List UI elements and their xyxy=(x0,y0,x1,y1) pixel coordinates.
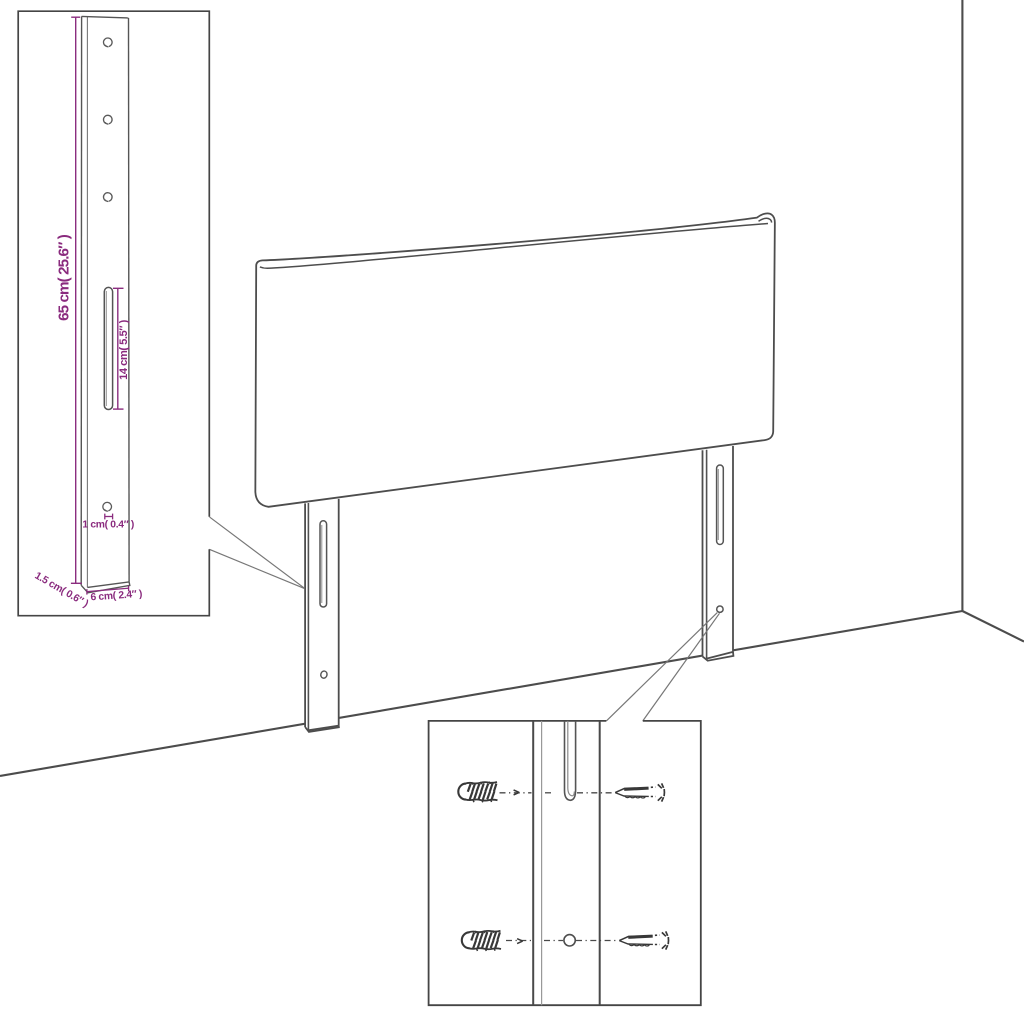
svg-text:65 cm( 25.6″ ): 65 cm( 25.6″ ) xyxy=(56,234,73,321)
svg-text:1 cm( 0.4″ ): 1 cm( 0.4″ ) xyxy=(82,520,134,531)
svg-text:14 cm( 5.5″ ): 14 cm( 5.5″ ) xyxy=(118,319,130,380)
